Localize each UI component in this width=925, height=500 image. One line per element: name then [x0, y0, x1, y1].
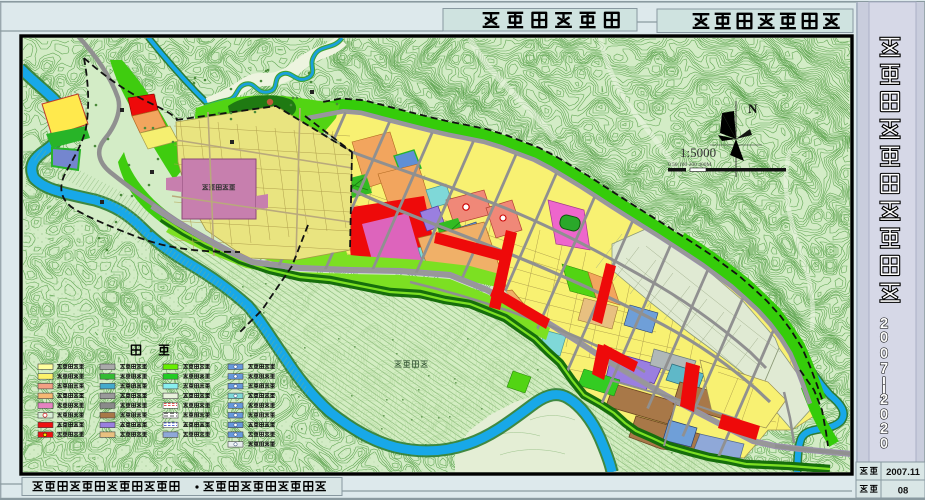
svg-text:0: 0	[880, 435, 888, 452]
svg-text:1:5000: 1:5000	[680, 145, 716, 160]
svg-text:08: 08	[898, 486, 909, 497]
svg-text:N: N	[748, 101, 758, 116]
svg-text:0 50 100 200 400M: 0 50 100 200 400M	[668, 162, 712, 168]
svg-text:2007.11: 2007.11	[886, 467, 921, 478]
svg-text:0: 0	[880, 329, 888, 346]
